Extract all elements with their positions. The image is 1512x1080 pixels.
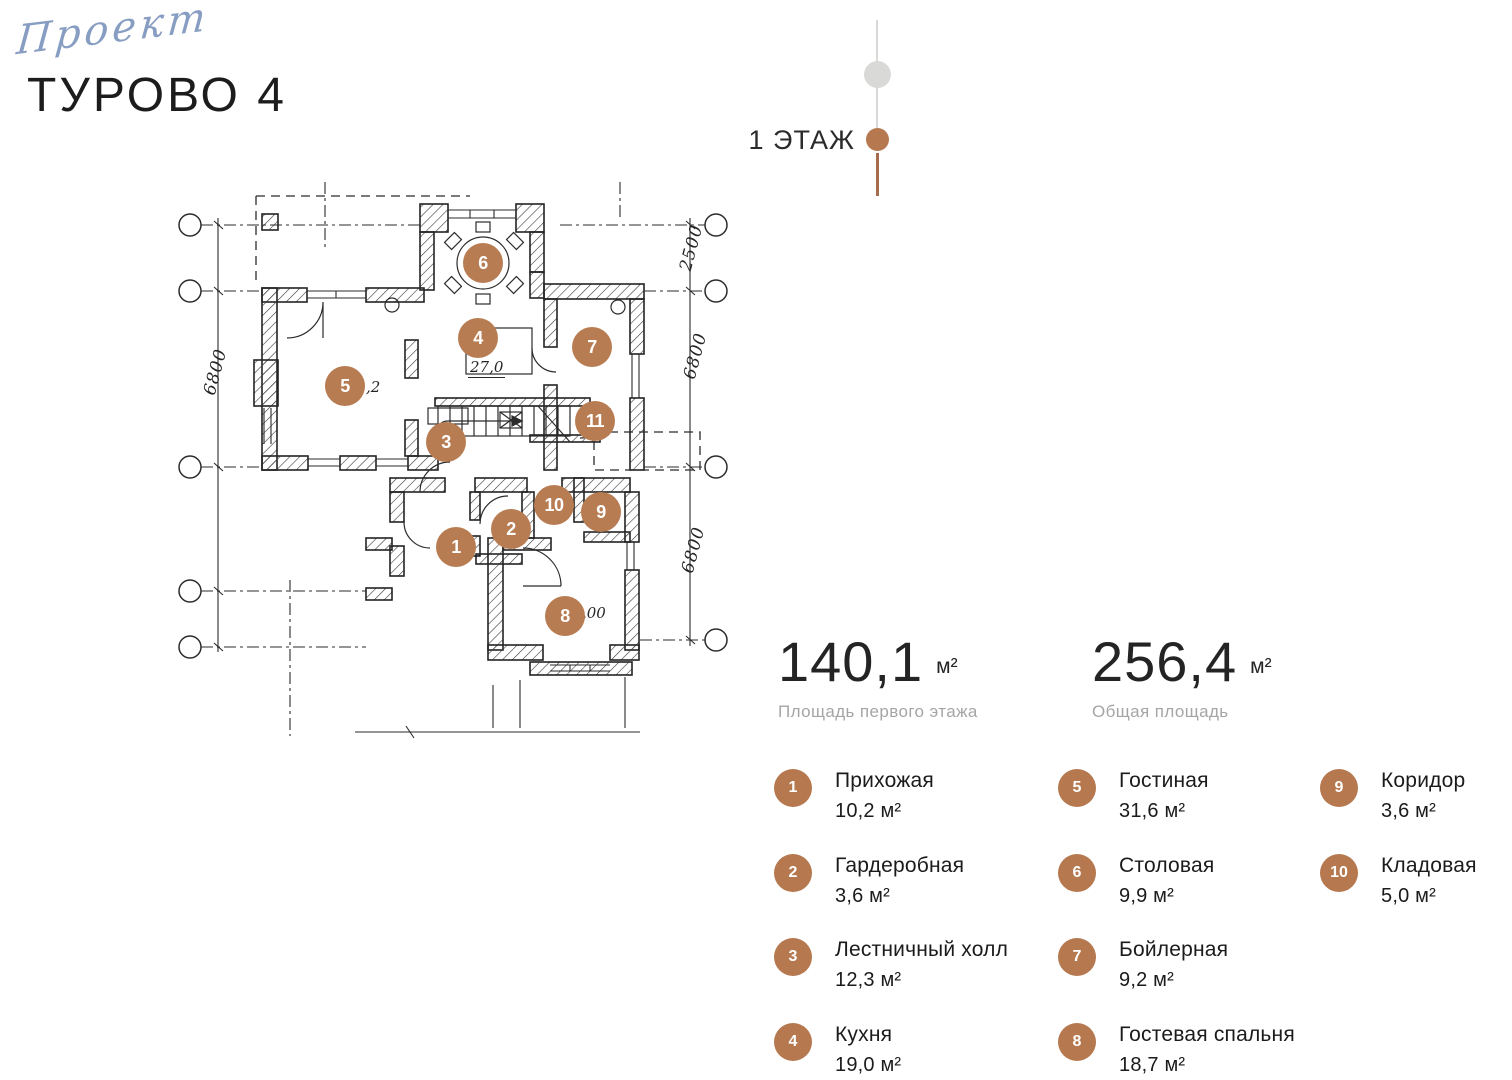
legend-number-badge: 5 [1058, 769, 1096, 807]
room-marker-5[interactable]: 5 [325, 366, 365, 406]
legend-item-6: 6 Столовая 9,9 м² [1058, 854, 1215, 908]
plan-annotation-27: 27,0 [468, 358, 505, 378]
legend-room-area: 3,6 м² [1381, 800, 1465, 823]
legend-room-area: 18,7 м² [1119, 1054, 1295, 1077]
legend-room-area: 10,2 м² [835, 800, 934, 823]
legend-room-area: 31,6 м² [1119, 800, 1209, 823]
room-marker-4[interactable]: 4 [458, 318, 498, 358]
legend-number-badge: 3 [774, 938, 812, 976]
legend-room-name: Гостевая спальня [1119, 1023, 1295, 1047]
stat-value: 256,4 [1092, 630, 1237, 693]
logo-script: Проект [15, 0, 212, 64]
legend-item-2: 2 Гардеробная 3,6 м² [774, 854, 964, 908]
stat-unit: м² [936, 655, 957, 678]
legend-room-area: 3,6 м² [835, 885, 964, 908]
legend-room-area: 9,9 м² [1119, 885, 1215, 908]
legend-item-7: 7 Бойлерная 9,2 м² [1058, 938, 1228, 992]
room-marker-2[interactable]: 2 [491, 509, 531, 549]
legend-room-name: Кухня [835, 1023, 901, 1047]
stat-value-row: 256,4м² [1092, 634, 1272, 690]
legend-item-10: 10 Кладовая 5,0 м² [1320, 854, 1477, 908]
floor-timeline-lower-line [876, 153, 879, 196]
floor-plan-sketch [170, 180, 750, 740]
stat-first-floor-area: 140,1м² Площадь первого этажа [778, 634, 978, 722]
legend-item-4: 4 Кухня 19,0 м² [774, 1023, 901, 1077]
room-marker-9[interactable]: 9 [581, 492, 621, 532]
room-marker-1[interactable]: 1 [436, 527, 476, 567]
floor-plan-drawing: 6800 2500 6800 6800 27,0 ,2 ,00 1 2 3 4 … [170, 180, 750, 740]
page-title: ТУРОВО 4 [27, 68, 287, 123]
room-marker-7[interactable]: 7 [572, 327, 612, 367]
room-marker-6[interactable]: 6 [463, 243, 503, 283]
room-marker-3[interactable]: 3 [426, 422, 466, 462]
legend-room-area: 5,0 м² [1381, 885, 1477, 908]
stat-unit: м² [1250, 655, 1271, 678]
room-marker-10[interactable]: 10 [534, 485, 574, 525]
floor-2-dot[interactable] [864, 61, 891, 88]
legend-number-badge: 10 [1320, 854, 1358, 892]
legend-number-badge: 9 [1320, 769, 1358, 807]
stat-total-area: 256,4м² Общая площадь [1092, 634, 1272, 722]
legend-number-badge: 4 [774, 1023, 812, 1061]
stat-label: Площадь первого этажа [778, 702, 978, 722]
legend-room-name: Бойлерная [1119, 938, 1228, 962]
legend-item-3: 3 Лестничный холл 12,3 м² [774, 938, 1008, 992]
legend-room-name: Лестничный холл [835, 938, 1008, 962]
stat-value: 140,1 [778, 630, 923, 693]
legend-room-name: Прихожая [835, 769, 934, 793]
legend-room-name: Коридор [1381, 769, 1465, 793]
legend-room-area: 19,0 м² [835, 1054, 901, 1077]
legend-item-5: 5 Гостиная 31,6 м² [1058, 769, 1209, 823]
room-marker-8[interactable]: 8 [545, 596, 585, 636]
legend-room-name: Столовая [1119, 854, 1215, 878]
legend-item-8: 8 Гостевая спальня 18,7 м² [1058, 1023, 1295, 1077]
legend-room-area: 12,3 м² [835, 969, 1008, 992]
legend-item-9: 9 Коридор 3,6 м² [1320, 769, 1465, 823]
legend-room-name: Гостиная [1119, 769, 1209, 793]
stat-label: Общая площадь [1092, 702, 1272, 722]
room-marker-11[interactable]: 11 [575, 401, 615, 441]
legend-room-name: Гардеробная [835, 854, 964, 878]
legend-number-badge: 1 [774, 769, 812, 807]
legend-number-badge: 2 [774, 854, 812, 892]
floor-1-dot[interactable] [866, 128, 889, 151]
plan-annotation-00: ,00 [582, 604, 606, 622]
legend-room-area: 9,2 м² [1119, 969, 1228, 992]
legend-room-name: Кладовая [1381, 854, 1477, 878]
floor-label: 1 ЭТАЖ [700, 125, 855, 156]
stat-value-row: 140,1м² [778, 634, 978, 690]
legend-number-badge: 8 [1058, 1023, 1096, 1061]
legend-item-1: 1 Прихожая 10,2 м² [774, 769, 934, 823]
plan-annotation-2: ,2 [366, 378, 380, 396]
legend-number-badge: 6 [1058, 854, 1096, 892]
legend-number-badge: 7 [1058, 938, 1096, 976]
